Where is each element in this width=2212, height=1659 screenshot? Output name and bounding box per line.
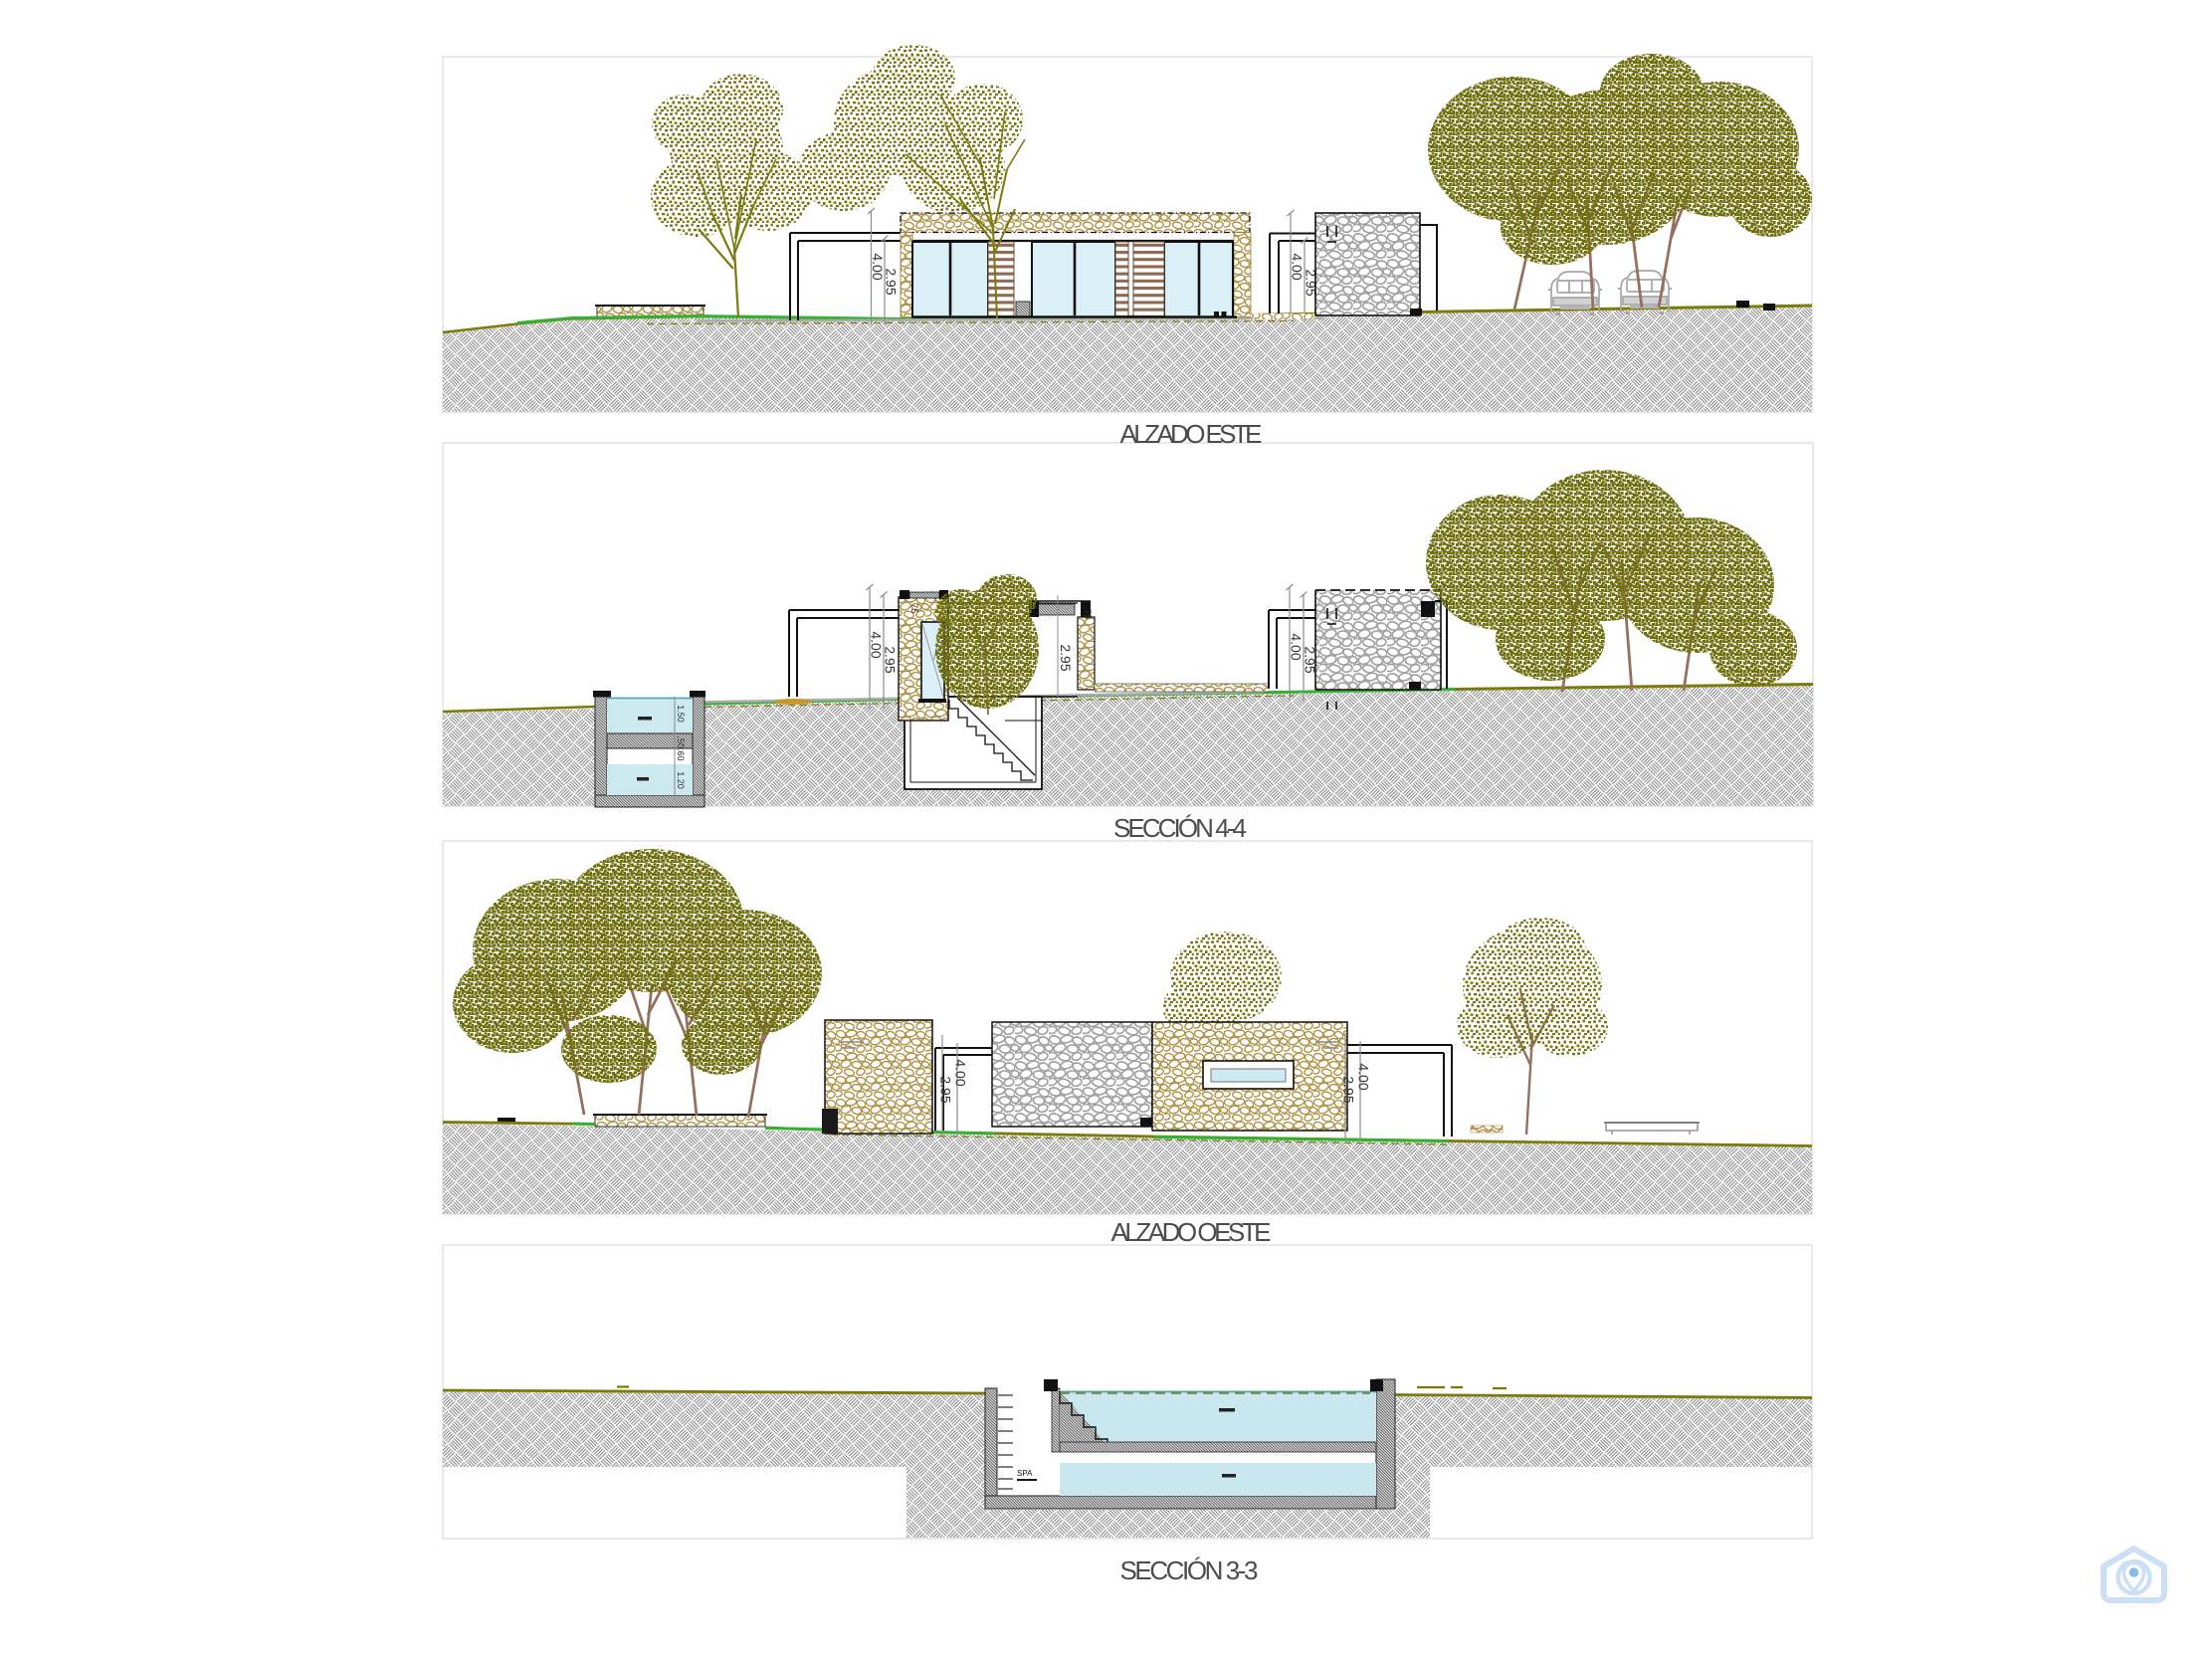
svg-text:2.95: 2.95 bbox=[1341, 1076, 1357, 1103]
svg-text:1.20: 1.20 bbox=[676, 771, 686, 789]
svg-text:2.95: 2.95 bbox=[1058, 644, 1074, 671]
svg-text:4.00: 4.00 bbox=[1356, 1063, 1372, 1090]
svg-text:2.95: 2.95 bbox=[883, 646, 899, 673]
svg-text:4.00: 4.00 bbox=[869, 631, 885, 658]
svg-text:2.95: 2.95 bbox=[938, 1076, 954, 1103]
svg-text:4.00: 4.00 bbox=[1289, 633, 1305, 660]
svg-text:.75: .75 bbox=[909, 601, 919, 614]
svg-text:SECCIÓN 4-4: SECCIÓN 4-4 bbox=[1113, 813, 1247, 843]
svg-text:ALZADO ESTE: ALZADO ESTE bbox=[1120, 419, 1263, 449]
svg-text:.50.60: .50.60 bbox=[676, 735, 686, 760]
svg-text:ALZADO OESTE: ALZADO OESTE bbox=[1111, 1217, 1272, 1247]
svg-text:SECCIÓN 3-3: SECCIÓN 3-3 bbox=[1120, 1555, 1259, 1585]
svg-text:4.00: 4.00 bbox=[953, 1059, 969, 1086]
svg-text:4.00: 4.00 bbox=[1290, 253, 1306, 280]
svg-text:2.95: 2.95 bbox=[884, 268, 900, 295]
svg-text:.75: .75 bbox=[1083, 607, 1093, 620]
svg-text:1.50: 1.50 bbox=[676, 705, 686, 723]
svg-text:SPA: SPA bbox=[1017, 1469, 1033, 1478]
